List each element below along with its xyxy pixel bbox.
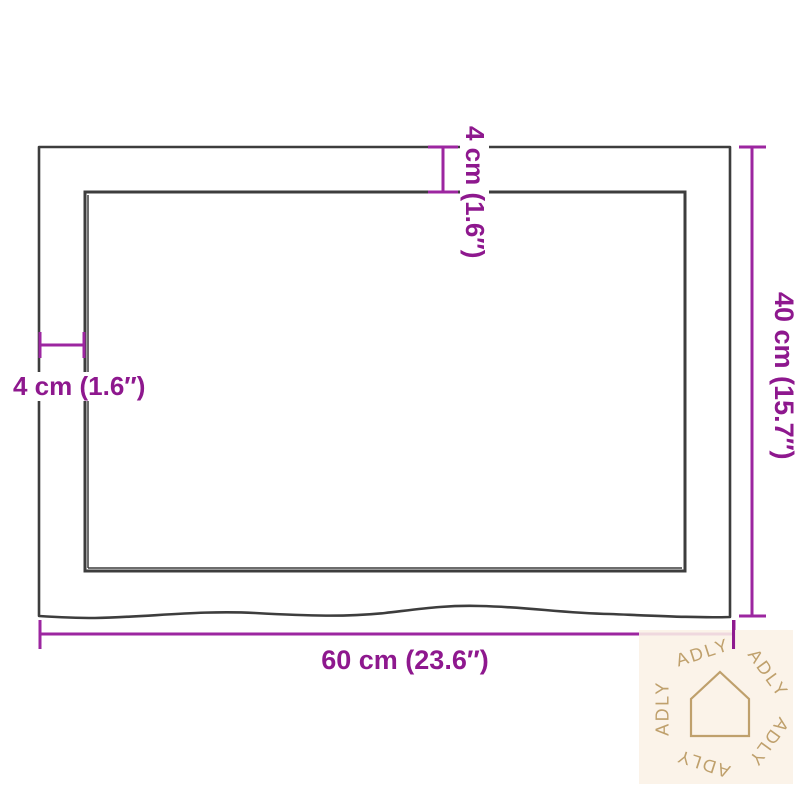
- house-outline-icon: [689, 670, 751, 738]
- tabletop-inner-outline: [85, 192, 685, 571]
- dimension-label-top-edge: 4 cm (1.6″): [460, 124, 489, 260]
- dimension-label-left-edge: 4 cm (1.6″): [11, 372, 147, 401]
- watermark-text: ADLY: [673, 634, 732, 671]
- watermark-text: ADLY: [653, 680, 674, 736]
- watermark-text: ADLY: [673, 745, 732, 782]
- dimension-diagram: ADLY ADLY ADLY ADLY ADLY 4 cm (1.6″) 4 c…: [0, 0, 800, 800]
- brand-watermark: ADLY ADLY ADLY ADLY ADLY: [639, 630, 793, 784]
- dimension-label-width: 60 cm (23.6″): [319, 645, 491, 675]
- dimension-label-depth: 40 cm (15.7″): [769, 290, 799, 462]
- dim-tick-bottom-right-overlay: [732, 620, 735, 649]
